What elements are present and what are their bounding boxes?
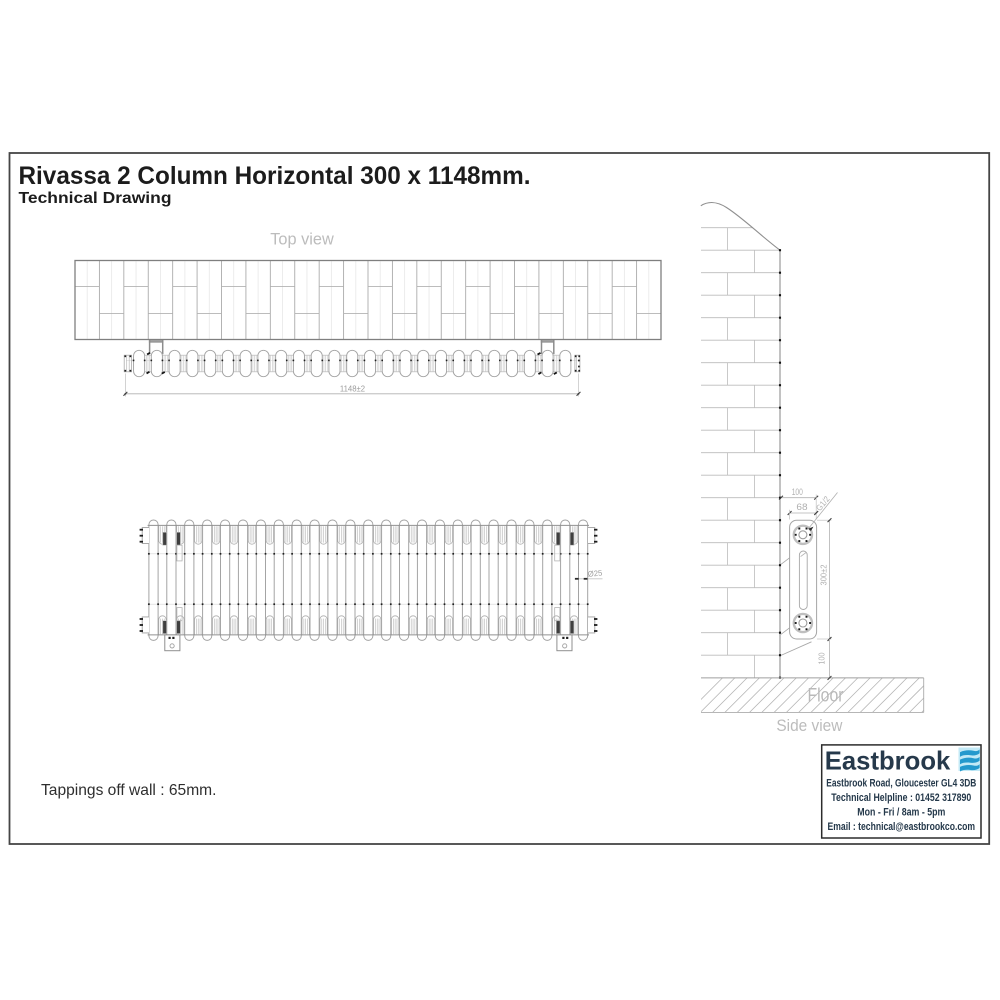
svg-text:Ø25: Ø25 [587, 569, 603, 579]
svg-text:Eastbrook Road, Gloucester GL4: Eastbrook Road, Gloucester GL4 3DB [826, 778, 976, 790]
svg-text:68: 68 [796, 502, 807, 512]
svg-text:Floor: Floor [808, 685, 845, 706]
svg-text:Technical Helpline : 01452 317: Technical Helpline : 01452 317890 [831, 792, 971, 804]
svg-text:100: 100 [817, 652, 827, 664]
svg-text:Rivassa 2 Column Horizontal 30: Rivassa 2 Column Horizontal 300 x 1148mm… [19, 162, 531, 190]
svg-text:Technical Drawing: Technical Drawing [19, 190, 172, 207]
svg-text:Eastbrook: Eastbrook [825, 746, 951, 776]
svg-text:Mon - Fri / 8am - 5pm: Mon - Fri / 8am - 5pm [857, 806, 945, 818]
svg-text:300±2: 300±2 [819, 564, 829, 585]
svg-text:1148±2: 1148±2 [340, 384, 365, 394]
svg-text:Top view: Top view [270, 231, 334, 249]
svg-text:Email : technical@eastbrookco.: Email : technical@eastbrookco.com [828, 821, 976, 833]
svg-text:Side view: Side view [776, 717, 842, 735]
svg-text:100: 100 [792, 487, 803, 497]
svg-text:Tappings off wall : 65mm.: Tappings off wall : 65mm. [41, 782, 217, 799]
